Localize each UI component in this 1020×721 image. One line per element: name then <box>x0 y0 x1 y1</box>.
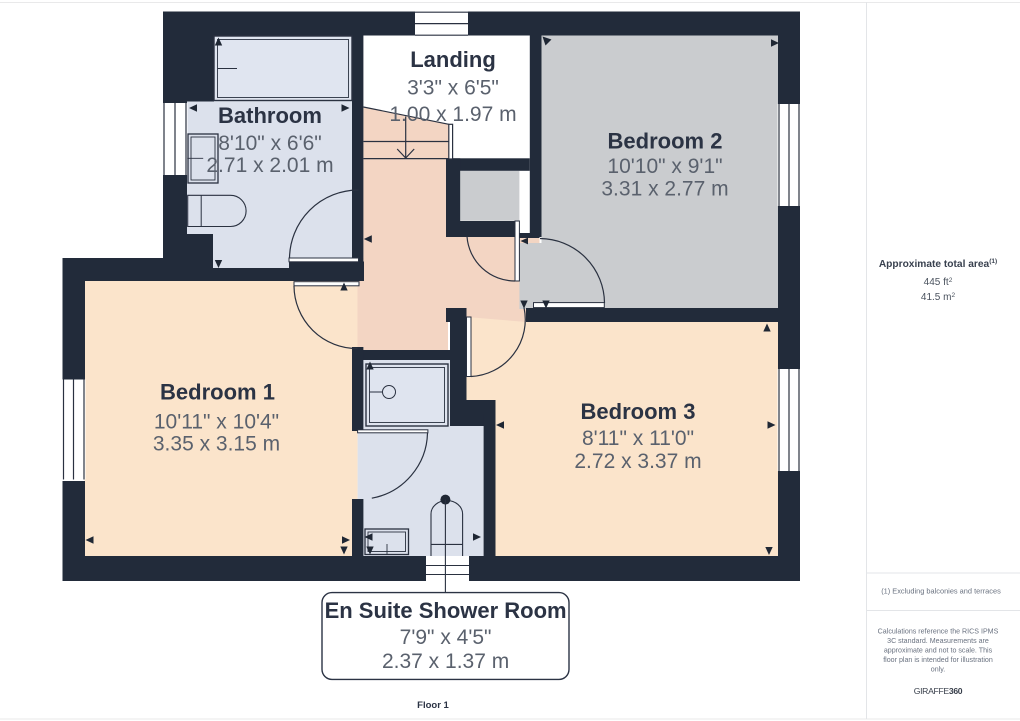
svg-text:Floor 1: Floor 1 <box>417 700 449 711</box>
svg-text:Bathroom: Bathroom <box>218 103 322 128</box>
svg-text:445 ft2: 445 ft2 <box>924 277 953 288</box>
svg-text:approximate and not to scale.: approximate and not to scale. This <box>884 647 993 655</box>
svg-text:10'11" x 10'4": 10'11" x 10'4" <box>154 411 279 434</box>
svg-text:floor plan is intended for ill: floor plan is intended for illustration <box>883 656 993 664</box>
svg-text:8'11" x 11'0": 8'11" x 11'0" <box>582 427 694 450</box>
svg-text:10'10" x 9'1": 10'10" x 9'1" <box>607 155 722 178</box>
svg-text:41.5 m2: 41.5 m2 <box>921 292 956 303</box>
svg-text:Bedroom 2: Bedroom 2 <box>608 129 723 154</box>
svg-text:3.35 x 3.15 m: 3.35 x 3.15 m <box>153 433 280 456</box>
svg-text:7'9" x 4'5": 7'9" x 4'5" <box>400 626 492 649</box>
svg-text:2.71 x 2.01 m: 2.71 x 2.01 m <box>206 154 333 177</box>
svg-text:only.: only. <box>931 666 945 674</box>
svg-text:2.37 x 1.37 m: 2.37 x 1.37 m <box>382 650 509 673</box>
svg-text:Bedroom 1: Bedroom 1 <box>160 380 275 405</box>
svg-text:2.72 x 3.37 m: 2.72 x 3.37 m <box>574 450 701 473</box>
svg-text:En Suite Shower Room: En Suite Shower Room <box>325 598 567 623</box>
svg-text:Calculations reference the RIC: Calculations reference the RICS IPMS <box>878 628 999 636</box>
svg-text:3C standard. Measurements are: 3C standard. Measurements are <box>887 637 989 645</box>
svg-text:1.00 x 1.97 m: 1.00 x 1.97 m <box>389 103 516 126</box>
svg-text:Landing: Landing <box>410 47 496 72</box>
svg-text:3'3" x 6'5": 3'3" x 6'5" <box>407 77 499 100</box>
svg-text:Bedroom 3: Bedroom 3 <box>581 399 696 424</box>
svg-text:3.31 x 2.77 m: 3.31 x 2.77 m <box>601 178 728 201</box>
svg-text:8'10" x 6'6": 8'10" x 6'6" <box>218 132 322 155</box>
svg-text:(1) Excluding balconies and te: (1) Excluding balconies and terraces <box>881 587 1001 596</box>
svg-text:Approximate total area(1): Approximate total area(1) <box>879 258 997 270</box>
svg-text:GIRAFFE360: GIRAFFE360 <box>914 686 963 696</box>
